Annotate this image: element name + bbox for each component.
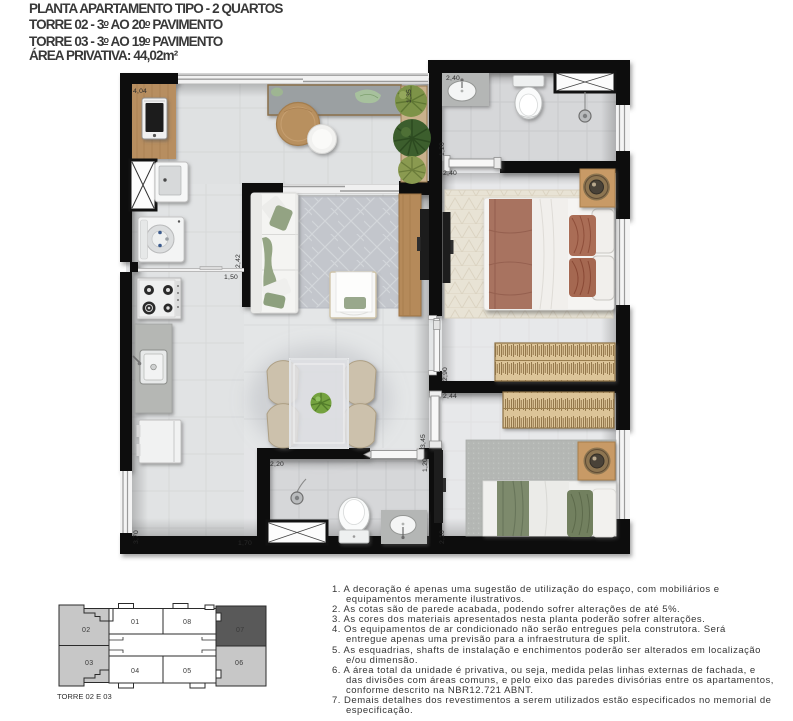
svg-text:3,70: 3,70 <box>133 530 140 544</box>
svg-text:08: 08 <box>183 619 192 626</box>
svg-text:2,90: 2,90 <box>442 367 449 381</box>
svg-text:1,50: 1,50 <box>224 274 238 281</box>
svg-text:4,04: 4,04 <box>133 88 147 95</box>
svg-text:3,45: 3,45 <box>420 434 427 448</box>
svg-text:1,70: 1,70 <box>238 540 252 547</box>
svg-text:04: 04 <box>131 668 140 675</box>
svg-text:1,20: 1,20 <box>422 458 429 472</box>
svg-text:2,40: 2,40 <box>446 75 460 82</box>
svg-text:2,10: 2,10 <box>439 530 446 544</box>
svg-text:2,44: 2,44 <box>443 393 457 400</box>
svg-text:01: 01 <box>131 619 140 626</box>
svg-text:2,20: 2,20 <box>270 461 284 468</box>
svg-text:02: 02 <box>82 627 91 634</box>
svg-text:1,20: 1,20 <box>439 142 446 156</box>
svg-text:03: 03 <box>85 660 94 667</box>
svg-text:1,35: 1,35 <box>406 89 413 103</box>
svg-text:05: 05 <box>183 668 192 675</box>
svg-text:2,42: 2,42 <box>235 254 242 268</box>
svg-text:07: 07 <box>236 627 245 634</box>
svg-text:2,40: 2,40 <box>443 170 457 177</box>
svg-text:06: 06 <box>235 660 244 667</box>
svg-text:TORRE 02 E 03: TORRE 02 E 03 <box>57 692 112 701</box>
